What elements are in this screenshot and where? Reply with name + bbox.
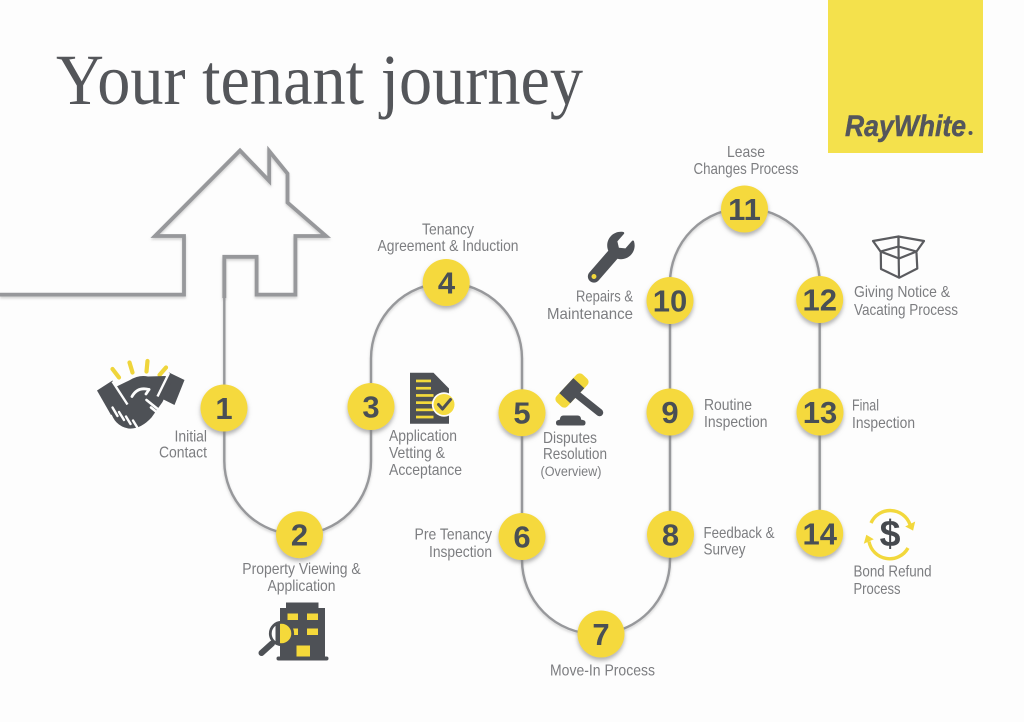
svg-text:9: 9 — [661, 395, 678, 430]
svg-text:Giving Notice &Vacating Proces: Giving Notice &Vacating Process — [854, 284, 958, 319]
svg-text:7: 7 — [592, 617, 609, 652]
svg-text:11: 11 — [728, 192, 761, 227]
svg-text:LeaseChanges Process: LeaseChanges Process — [694, 144, 799, 178]
svg-text:5: 5 — [513, 396, 530, 431]
svg-text:13: 13 — [803, 395, 837, 430]
svg-text:RayWhite: RayWhite — [845, 110, 966, 143]
svg-text:ApplicationVetting &Acceptance: ApplicationVetting &Acceptance — [389, 428, 462, 479]
svg-text:Bond RefundProcess: Bond RefundProcess — [854, 563, 932, 598]
svg-text:Move-In Process: Move-In Process — [550, 663, 655, 680]
svg-text:12: 12 — [802, 283, 836, 318]
svg-text:14: 14 — [802, 516, 837, 551]
svg-text:3: 3 — [362, 390, 379, 425]
svg-text:1: 1 — [215, 391, 232, 426]
svg-text:Pre TenancyInspection: Pre TenancyInspection — [415, 526, 493, 561]
svg-text:2: 2 — [291, 518, 308, 553]
svg-text:Property Viewing &Application: Property Viewing &Application — [242, 561, 361, 595]
svg-text:4: 4 — [438, 265, 456, 300]
svg-text:DisputesResolution(Overview): DisputesResolution(Overview) — [541, 430, 608, 479]
svg-text:$: $ — [880, 512, 901, 554]
svg-text:RoutineInspection: RoutineInspection — [704, 397, 768, 431]
svg-text:10: 10 — [653, 284, 687, 319]
svg-text:FinalInspection: FinalInspection — [852, 397, 915, 432]
svg-text:8: 8 — [662, 517, 679, 552]
svg-text:6: 6 — [513, 520, 530, 555]
svg-text:InitialContact: InitialContact — [159, 429, 207, 462]
svg-text:Your tenant journey: Your tenant journey — [56, 40, 583, 120]
svg-text:Feedback &Survey: Feedback &Survey — [704, 525, 775, 558]
svg-text:TenancyAgreement & Induction: TenancyAgreement & Induction — [378, 222, 519, 255]
svg-text:Repairs &Maintenance: Repairs &Maintenance — [547, 289, 633, 324]
